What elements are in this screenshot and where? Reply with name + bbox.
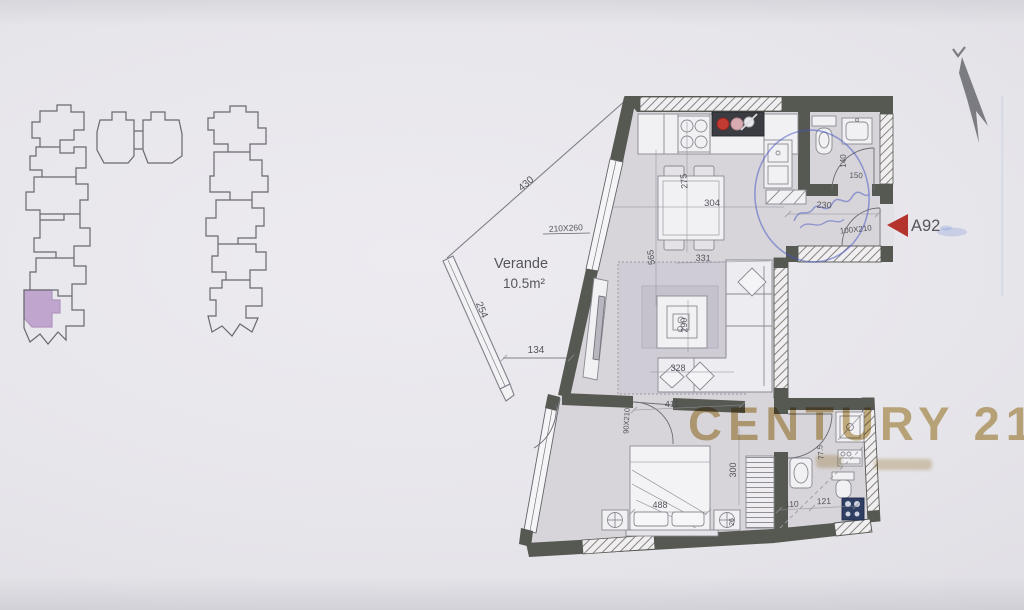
north-check-mark	[953, 47, 965, 56]
dim-living-top: 331	[695, 253, 710, 264]
dim-bath-width: 140	[839, 154, 848, 168]
watermark-subtext-blur	[816, 455, 842, 468]
building-outline-center	[97, 112, 182, 163]
fridge	[764, 140, 792, 188]
wardrobe	[746, 456, 774, 528]
dim-bath-length: 150	[849, 171, 863, 180]
label-veranda-name: Verande	[494, 256, 548, 272]
label-bedroom-door: 90X210	[621, 408, 631, 434]
bed-headboard	[626, 530, 718, 536]
dim-veranda-bottom: 134	[528, 345, 545, 356]
paper-shading-bottom	[0, 576, 1024, 610]
dim-hall-width: 230	[816, 200, 832, 211]
dim-coffee-table: 290	[678, 317, 689, 333]
bed-pillow	[672, 512, 704, 526]
window-hatch-kitchen	[640, 97, 782, 111]
dim-ensuite-right: 121	[817, 496, 832, 506]
site-key-plan	[24, 105, 268, 344]
wall-hatch-living-right	[774, 258, 788, 398]
dim-living-bottom: 328	[670, 363, 685, 373]
plan-drawing: 430 254 134 Verande 10.5m² 210X260 275 3…	[0, 0, 1024, 610]
dim-bedroom-top: 411	[665, 399, 680, 409]
label-veranda-area: 10.5m²	[503, 276, 546, 291]
label-unit-code: A92	[911, 217, 940, 235]
watermark-subtext-blur	[874, 459, 932, 470]
dim-dining-depth: 275	[678, 173, 689, 189]
bathroom-sink	[842, 118, 872, 144]
floor-plan-photo: 430 254 134 Verande 10.5m² 210X260 275 3…	[0, 0, 1024, 610]
highlighted-unit	[24, 290, 60, 327]
table-lamp-left	[608, 513, 623, 528]
dim-dining-width: 304	[704, 198, 720, 209]
dim-bedroom-depth: 300	[728, 462, 738, 477]
dim-bed-width: 488	[652, 500, 667, 510]
paper-streak	[1001, 96, 1004, 296]
kitchen-sink	[712, 112, 764, 136]
label-window-living: 210X260	[549, 222, 584, 234]
shoe-cabinet	[766, 190, 806, 204]
window-hatch-bath	[880, 114, 893, 184]
bed-pillow	[634, 512, 668, 526]
dim-ensuite-left: 110	[785, 499, 799, 509]
building-outline-right	[206, 106, 268, 336]
dim-nightstand: 26	[729, 518, 736, 526]
pen-smudge	[940, 226, 952, 231]
dim-living-length: 565	[645, 249, 657, 265]
wall-hatch-hall	[798, 246, 881, 262]
ensuite-sink	[790, 458, 812, 488]
watermark-brand: CENTURY 21	[688, 396, 1024, 451]
bed	[626, 446, 718, 536]
north-arrow-icon	[953, 47, 988, 143]
dim-veranda-top: 430	[516, 174, 536, 194]
